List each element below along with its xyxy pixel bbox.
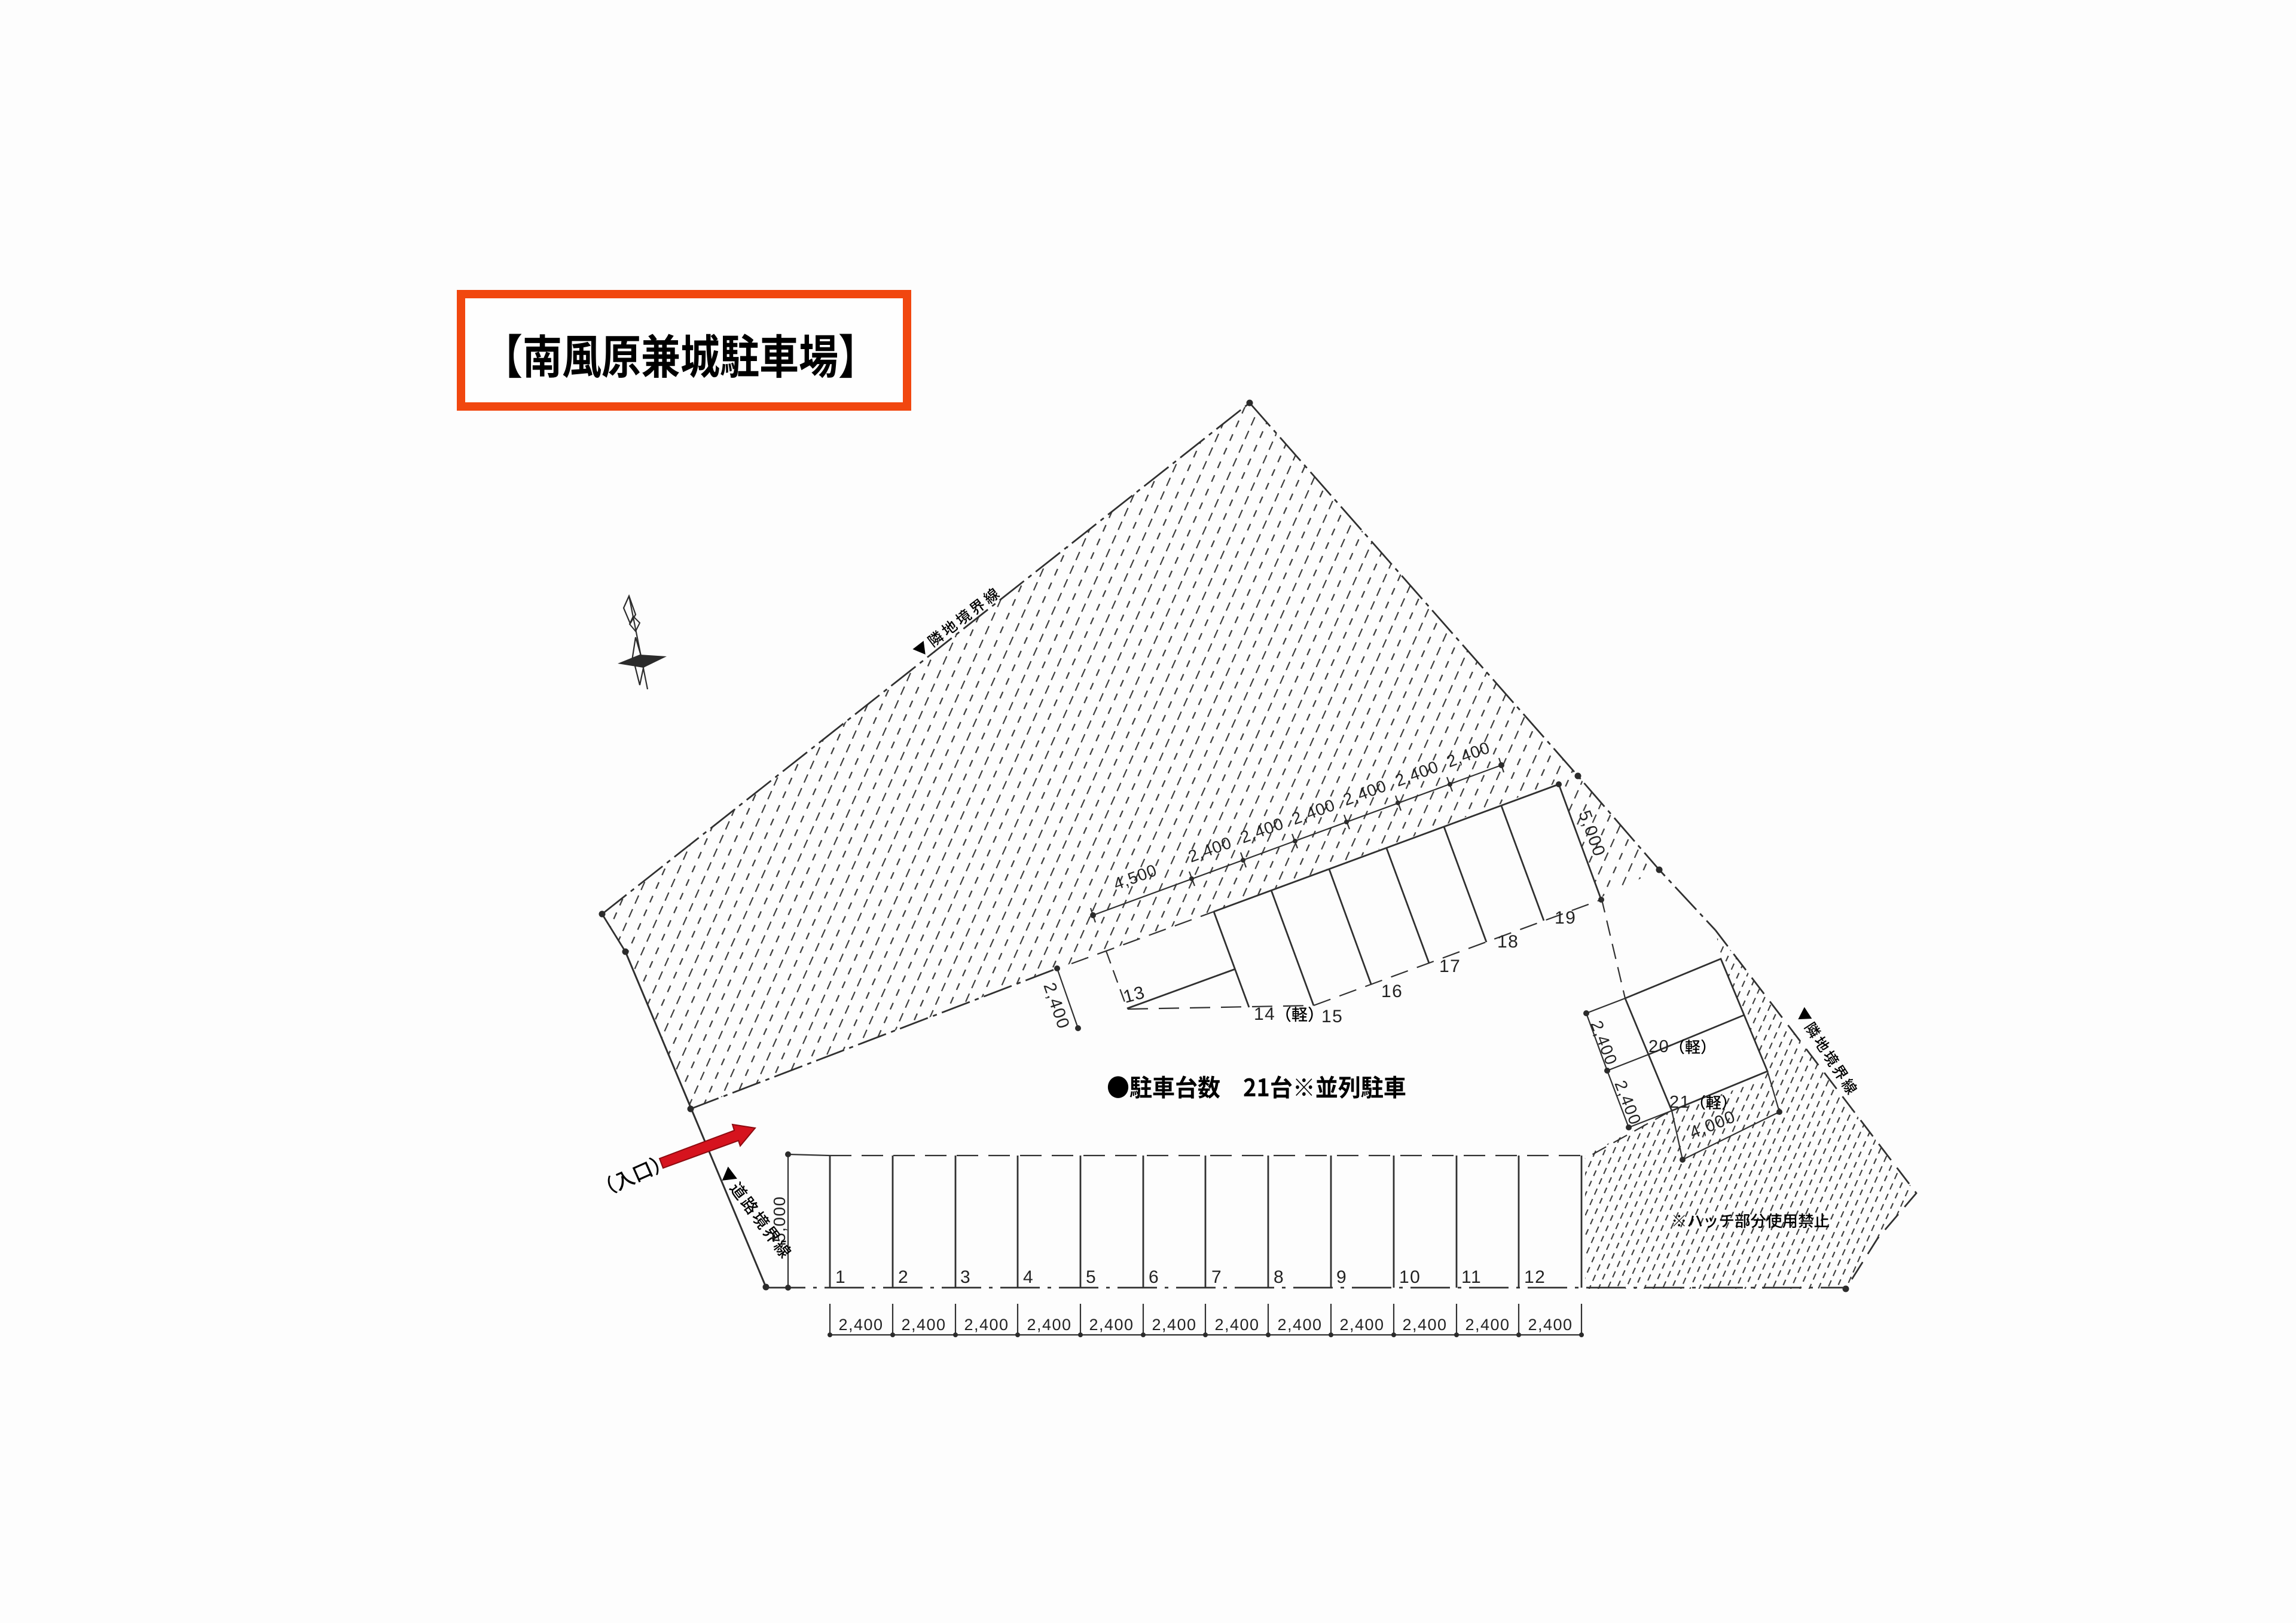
- svg-text:11: 11: [1461, 1267, 1482, 1287]
- svg-text:14: 14: [1254, 1004, 1275, 1024]
- svg-text:3: 3: [960, 1267, 971, 1287]
- svg-text:21: 21: [1669, 1093, 1690, 1112]
- svg-text:4: 4: [1023, 1267, 1034, 1287]
- svg-text:9: 9: [1336, 1267, 1347, 1287]
- svg-text:2,400: 2,400: [838, 1316, 883, 1334]
- svg-text:18: 18: [1497, 932, 1519, 952]
- svg-text:15: 15: [1321, 1007, 1343, 1026]
- svg-text:5: 5: [1086, 1267, 1097, 1287]
- svg-text:2,400: 2,400: [1214, 1316, 1259, 1334]
- svg-text:2,400: 2,400: [1089, 1316, 1134, 1334]
- svg-text:2,400: 2,400: [901, 1316, 946, 1334]
- svg-text:2,400: 2,400: [1152, 1316, 1196, 1334]
- svg-text:16: 16: [1381, 982, 1403, 1001]
- svg-text:8: 8: [1274, 1267, 1284, 1287]
- svg-text:17: 17: [1439, 956, 1461, 976]
- svg-text:2,400: 2,400: [964, 1316, 1009, 1334]
- svg-text:2: 2: [898, 1267, 909, 1287]
- svg-text:2,400: 2,400: [1339, 1316, 1384, 1334]
- svg-text:10: 10: [1399, 1267, 1421, 1287]
- svg-text:2,400: 2,400: [1465, 1316, 1510, 1334]
- svg-text:20: 20: [1648, 1037, 1669, 1056]
- svg-text:12: 12: [1524, 1267, 1546, 1287]
- svg-text:2,400: 2,400: [1402, 1316, 1447, 1334]
- svg-text:2,400: 2,400: [1528, 1316, 1573, 1334]
- svg-text:6: 6: [1149, 1267, 1159, 1287]
- svg-text:19: 19: [1555, 908, 1576, 928]
- svg-text:2,400: 2,400: [1027, 1316, 1071, 1334]
- svg-text:7: 7: [1211, 1267, 1222, 1287]
- svg-text:1: 1: [835, 1267, 846, 1287]
- svg-text:2,400: 2,400: [1277, 1316, 1322, 1334]
